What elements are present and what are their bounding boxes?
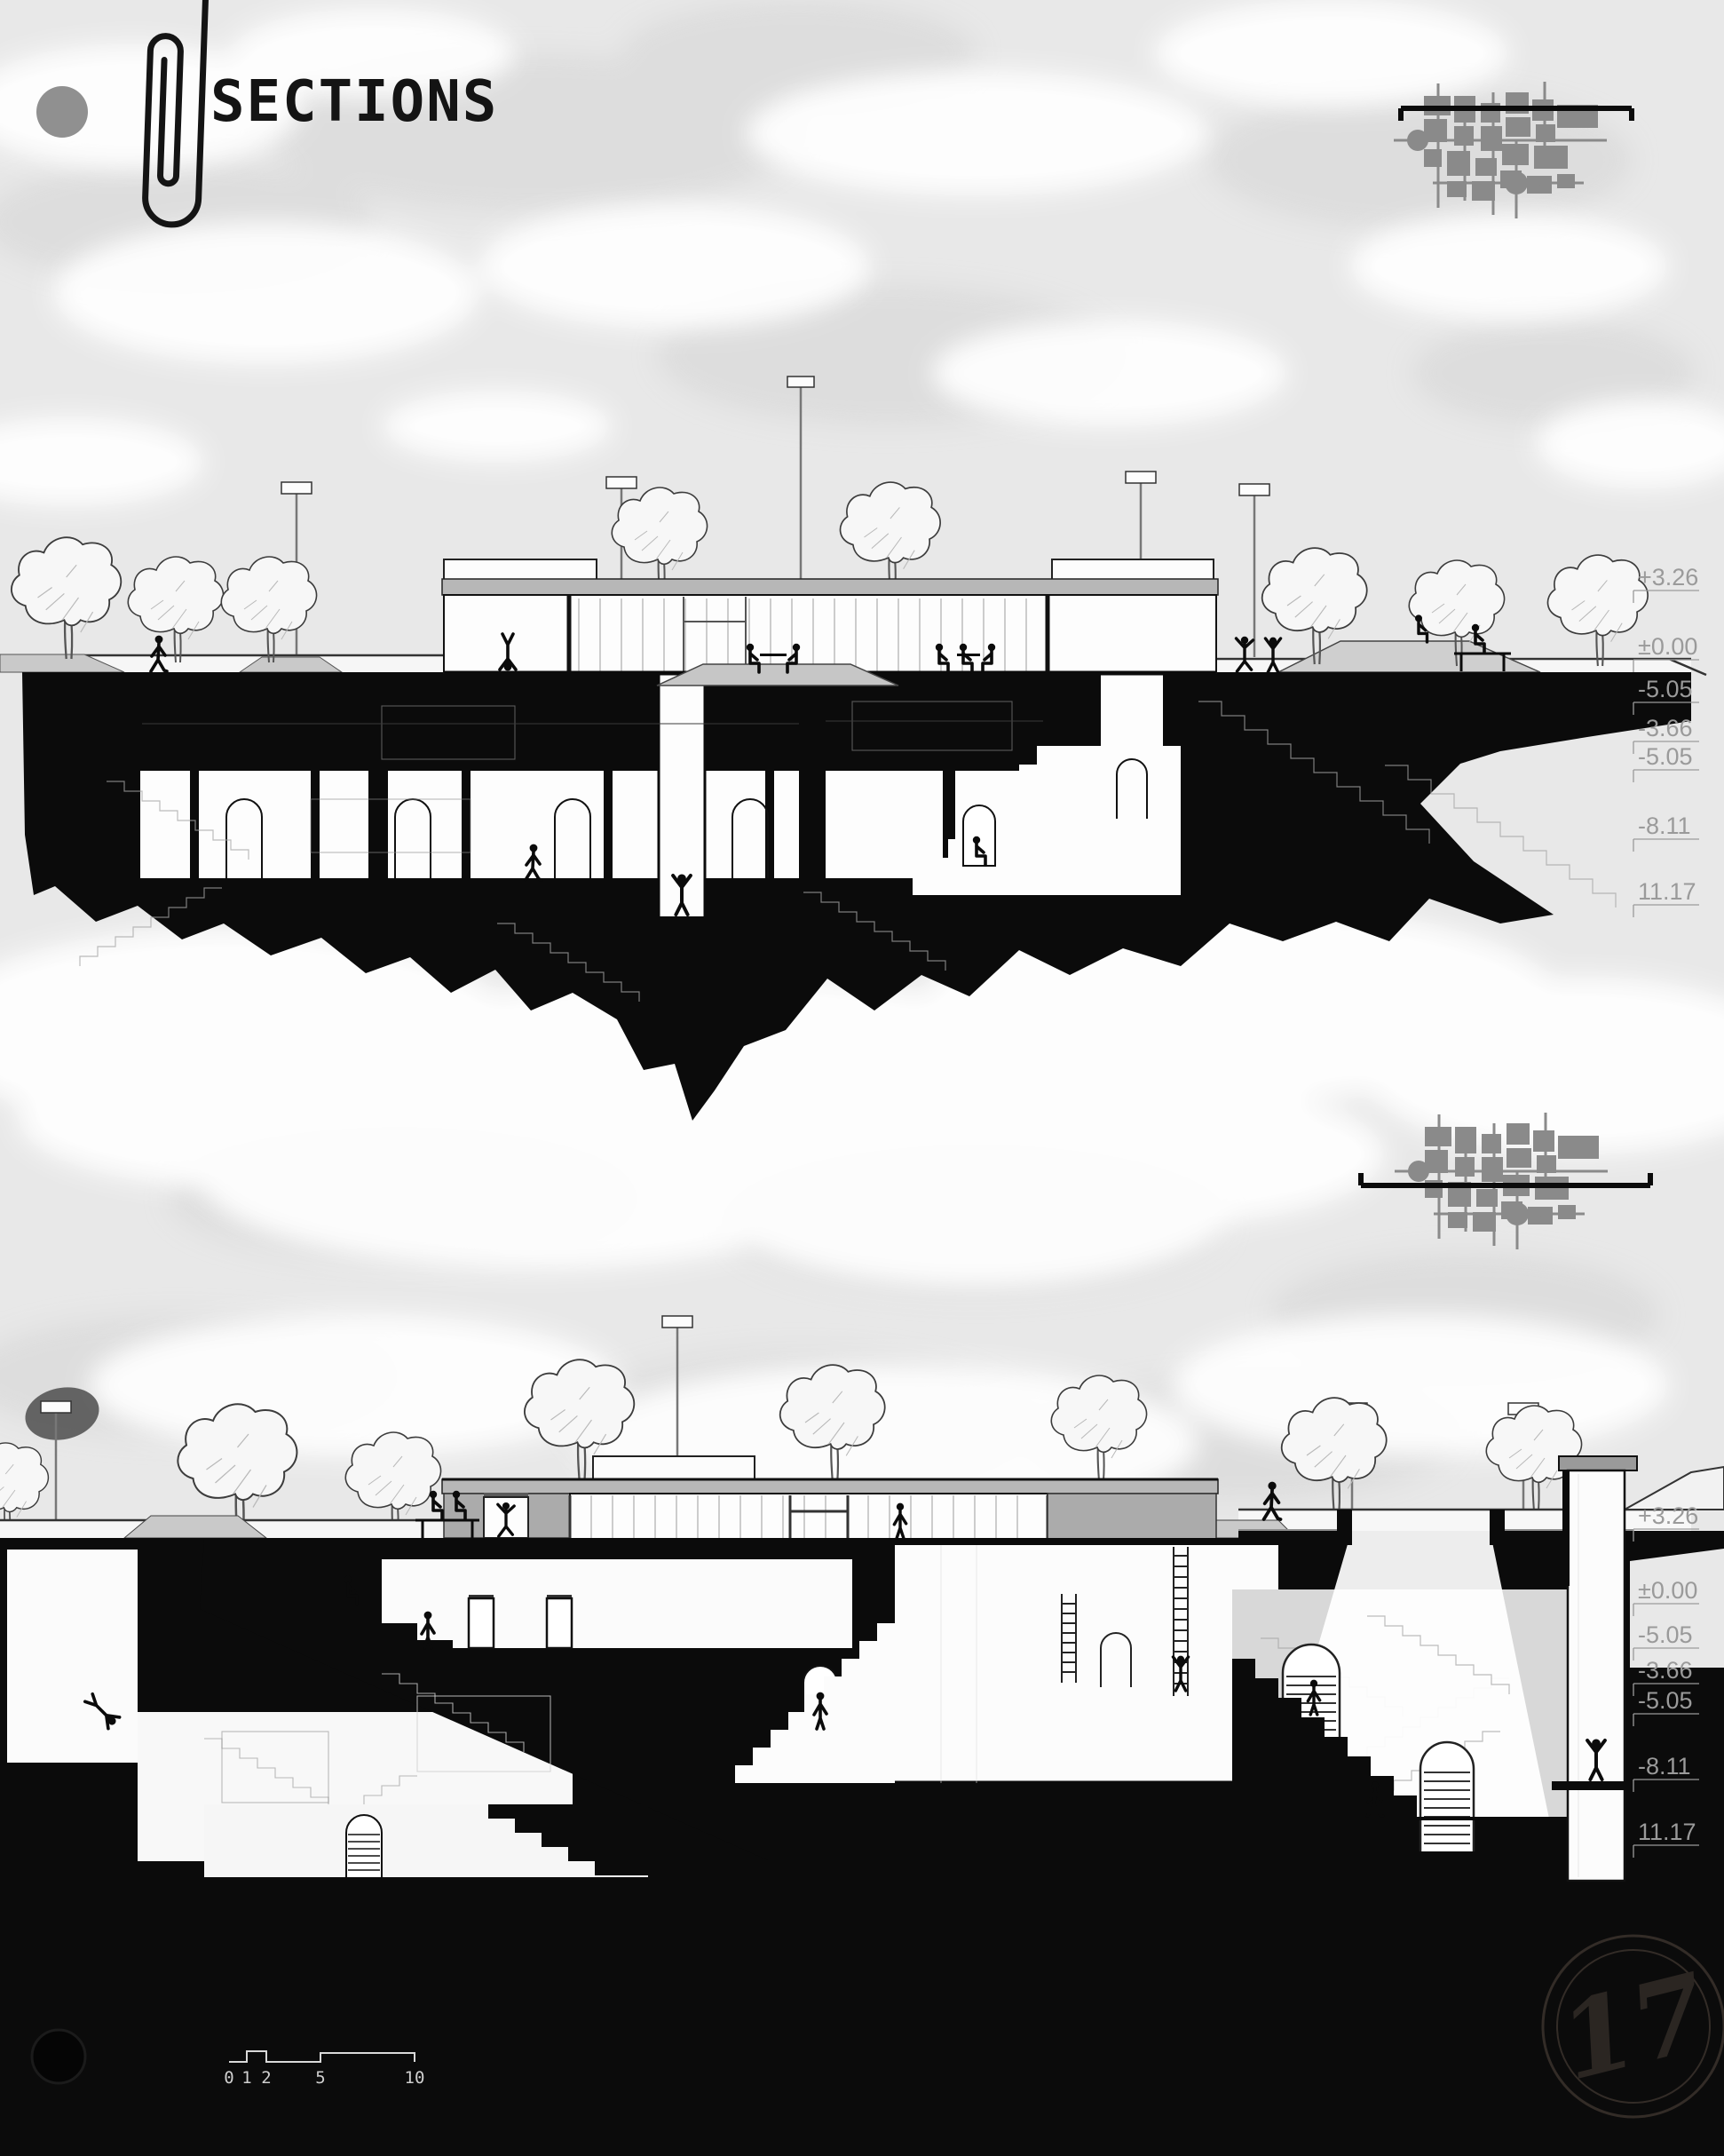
elevation-label: -8.11 [1638, 1753, 1691, 1779]
elevation-label: -3.66 [1638, 1657, 1693, 1684]
elevation-label: -5.05 [1638, 743, 1693, 770]
elevation-label: -5.05 [1638, 676, 1693, 702]
page-title: SECTIONS [210, 69, 498, 135]
elevation-label: -5.05 [1638, 1621, 1693, 1648]
elevation-label: -8.11 [1638, 812, 1691, 839]
scale-label: 2 [261, 2068, 271, 2088]
elevation-label: 11.17 [1638, 1819, 1696, 1845]
presentation-board: SECTIONS [0, 0, 1724, 2156]
scale-label: 10 [405, 2068, 425, 2088]
hole-punch-dot [36, 86, 88, 138]
elevation-label: +3.26 [1638, 564, 1698, 591]
scale-label: 5 [315, 2068, 325, 2088]
hole-punch-dot-bottom [32, 2030, 85, 2083]
elevation-label: -3.66 [1638, 715, 1693, 741]
elevation-label: +3.26 [1638, 1502, 1698, 1529]
elevation-label: ±0.00 [1638, 633, 1697, 660]
elevation-label: ±0.00 [1638, 1577, 1697, 1604]
scale-label: 1 [241, 2068, 251, 2088]
scale-label: 0 [224, 2068, 233, 2088]
elevation-label: -5.05 [1638, 1687, 1693, 1714]
elevation-label: 11.17 [1638, 878, 1696, 905]
